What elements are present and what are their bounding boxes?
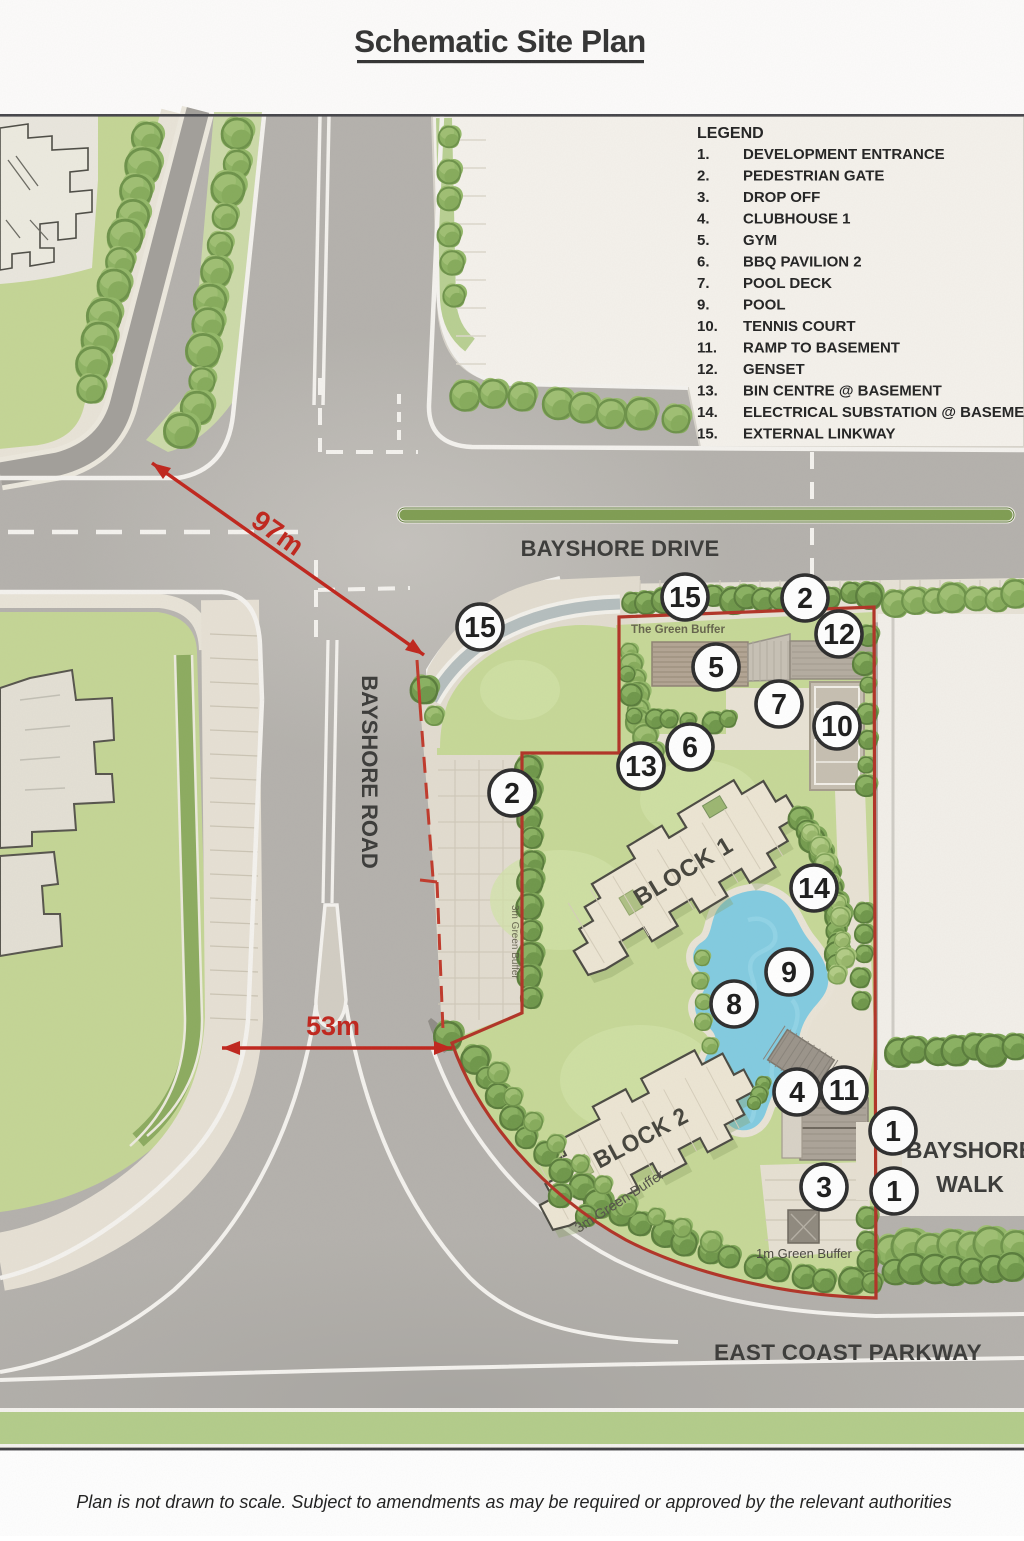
svg-text:Plan is not drawn to scale. Su: Plan is not drawn to scale. Subject to a… bbox=[76, 1492, 952, 1512]
svg-text:Schematic Site Plan: Schematic Site Plan bbox=[354, 23, 646, 59]
